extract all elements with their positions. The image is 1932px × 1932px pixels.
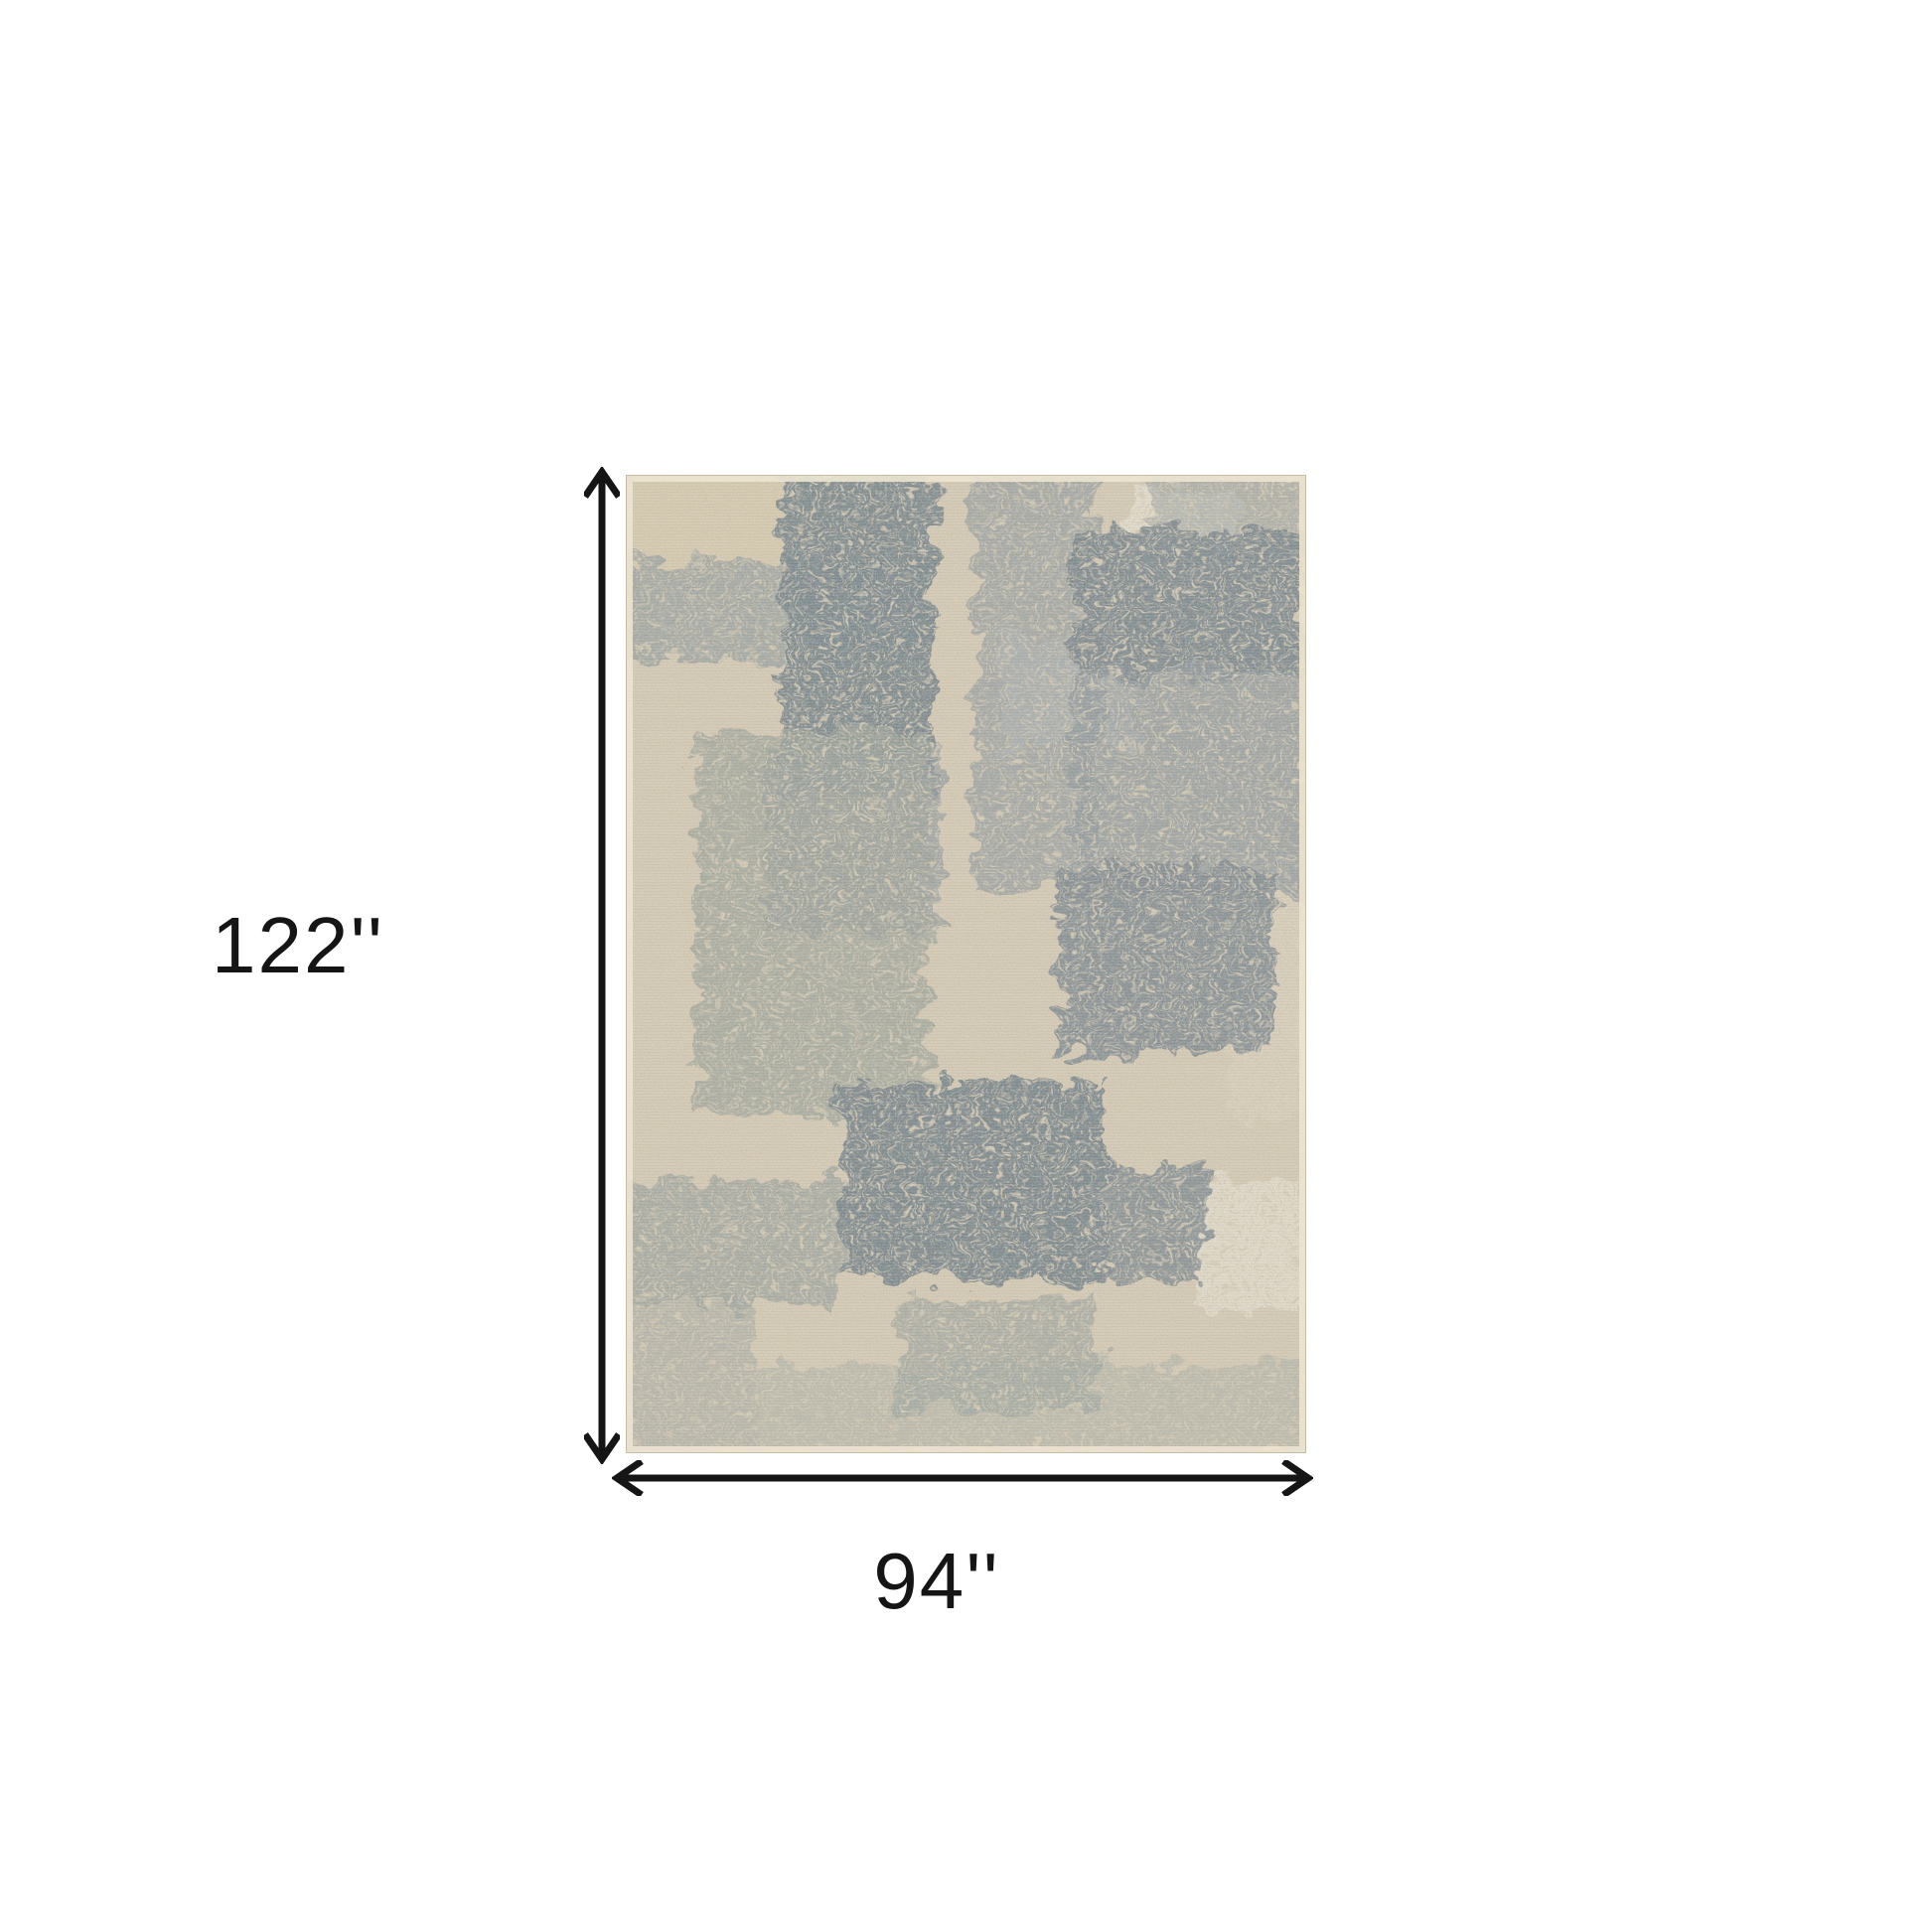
rug-dimension-diagram: 122'' 94'': [0, 0, 1932, 1932]
rug-image: [626, 475, 1306, 1453]
height-dimension-arrow: [584, 467, 620, 1464]
height-label: 122'': [149, 906, 447, 985]
width-dimension-arrow: [612, 1460, 1313, 1496]
rug-weave-texture: [626, 475, 1306, 1453]
width-label: 94'': [788, 1542, 1086, 1621]
rug-art: [626, 475, 1306, 1453]
